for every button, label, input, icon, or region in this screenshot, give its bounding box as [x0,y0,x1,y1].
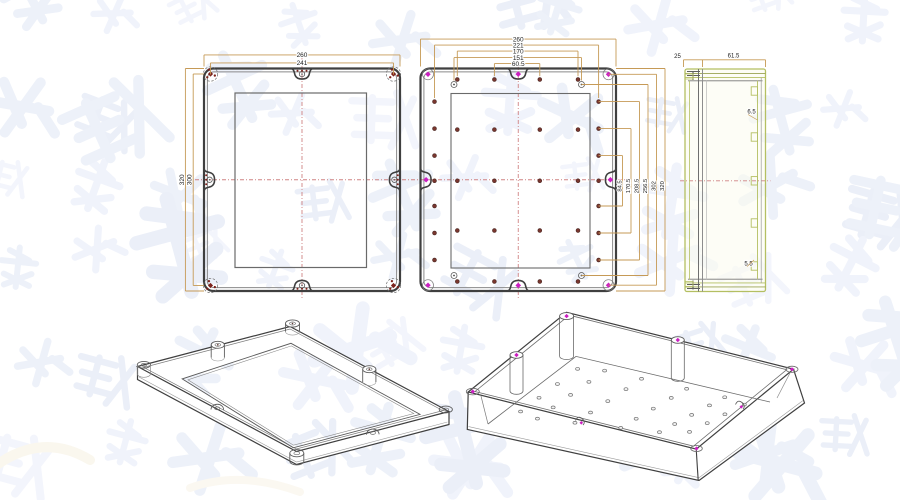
svg-text:260: 260 [297,52,308,59]
svg-text:320: 320 [179,174,186,185]
svg-text:170.5: 170.5 [626,179,632,194]
svg-text:300: 300 [187,174,194,185]
svg-text:256.5: 256.5 [643,179,649,194]
svg-text:25: 25 [674,54,681,60]
svg-text:302: 302 [651,181,657,191]
svg-text:208.5: 208.5 [634,179,640,194]
svg-text:61.5: 61.5 [728,54,740,60]
svg-text:320: 320 [660,181,666,191]
svg-text:6.5: 6.5 [747,109,756,115]
svg-text:241: 241 [297,60,308,67]
svg-text:60.5: 60.5 [512,61,525,68]
svg-text:84.5: 84.5 [617,180,623,191]
